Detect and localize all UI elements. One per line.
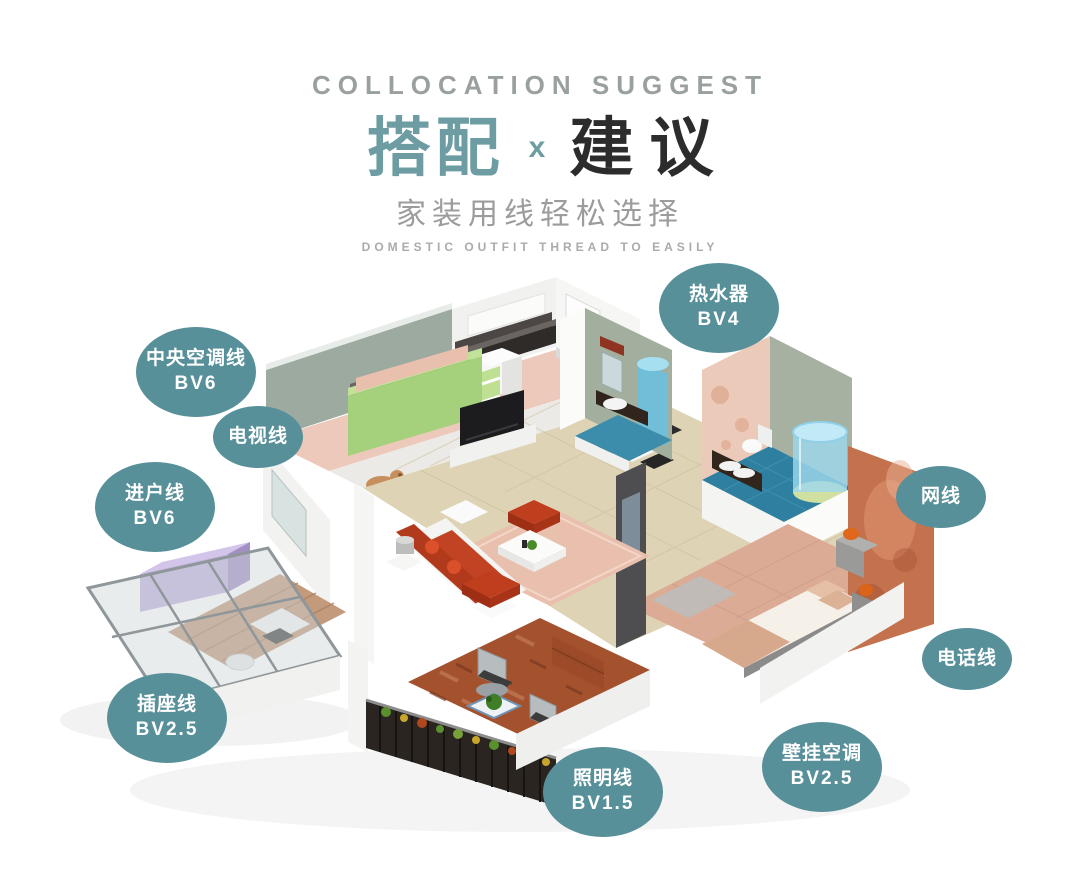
wire-badge-label: 电话线	[937, 647, 997, 672]
main-title: 搭配 x 建议	[0, 105, 1080, 181]
promo-banner: COLLOCATION SUGGEST 搭配 x 建议 家装用线轻松选择 DOM…	[0, 0, 1080, 873]
wire-badge-label: 电视线	[228, 425, 288, 450]
eyebrow-text: COLLOCATION SUGGEST	[0, 70, 1080, 101]
header: COLLOCATION SUGGEST 搭配 x 建议 家装用线轻松选择 DOM…	[0, 0, 1080, 254]
subtitle-en: DOMESTIC OUTFIT THREAD TO EASILY	[0, 240, 1080, 254]
wire-badge-phone-line: 电话线	[922, 628, 1012, 690]
wire-badge-spec: BV2.5	[136, 718, 199, 743]
title-separator: x	[529, 121, 546, 165]
wire-badge-label: 进户线	[125, 482, 185, 507]
wire-badge-spec: BV6	[134, 507, 177, 532]
wire-badge-wall-ac: 壁挂空调BV2.5	[762, 722, 882, 812]
wire-badge-label: 中央空调线	[146, 347, 246, 372]
wire-badge-socket-line: 插座线BV2.5	[107, 673, 227, 763]
wire-badge-lighting-line: 照明线BV1.5	[543, 747, 663, 837]
title-secondary: 建议	[569, 97, 729, 189]
wire-badge-central-ac: 中央空调线BV6	[136, 327, 256, 417]
wire-badge-entry-line: 进户线BV6	[95, 462, 215, 552]
wire-badge-tv-line: 电视线	[213, 406, 303, 468]
subtitle-cn: 家装用线轻松选择	[0, 189, 1080, 233]
wire-badge-spec: BV1.5	[572, 792, 635, 817]
top-bathroom	[560, 308, 672, 473]
wire-badge-label: 网线	[921, 485, 961, 510]
wire-badge-spec: BV2.5	[791, 767, 854, 792]
bedside-lamp	[843, 528, 859, 540]
wire-badge-label: 热水器	[689, 283, 749, 308]
wire-badge-label: 壁挂空调	[782, 742, 862, 767]
wire-badge-label: 插座线	[137, 693, 197, 718]
wire-badge-label: 照明线	[573, 767, 633, 792]
wire-badge-spec: BV6	[175, 372, 218, 397]
wire-badge-spec: BV4	[698, 308, 741, 333]
wire-badge-network-line: 网线	[896, 466, 986, 528]
title-primary: 搭配	[367, 97, 505, 189]
right-bathroom	[702, 336, 852, 560]
wire-badge-water-heater: 热水器BV4	[659, 263, 779, 353]
